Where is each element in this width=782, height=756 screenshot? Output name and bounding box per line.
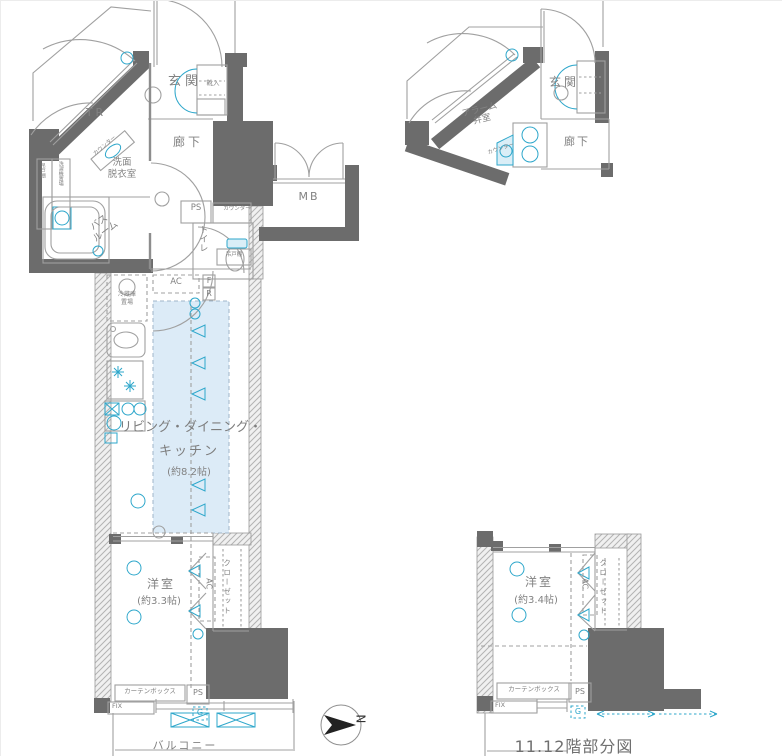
- label-trunk-room: TR: [71, 107, 121, 120]
- label-closet-ac-lower: AC: [580, 569, 589, 599]
- label-western-room-size-lower: (約3.4帖): [496, 595, 576, 607]
- label-fix-window-lower: FIX: [495, 702, 505, 709]
- label-balcony: バルコニー: [135, 740, 235, 753]
- label-pipe-space-bottom: PS: [187, 688, 209, 697]
- label-hallway-main: 廊下: [164, 136, 212, 150]
- label-meter-box: MB: [288, 191, 330, 204]
- label-shoe-cabinet: 靴入: [199, 80, 227, 87]
- plan-caption: 11.12階部分図: [499, 738, 649, 756]
- label-washroom-line2: 脱衣室: [97, 170, 147, 181]
- label-curtain-box-main: カーテンボックス: [115, 688, 185, 695]
- label-western-room-lower: 洋室: [509, 576, 569, 590]
- label-western-room-size-main: (約3.3帖): [119, 596, 199, 608]
- label-western-room-main: 洋室: [131, 578, 191, 592]
- label-hanging-cupboard-toilet: 吊戸棚: [217, 252, 251, 258]
- label-ldk-size: (約8.2帖): [119, 467, 259, 479]
- north-arrow-icon: [321, 705, 361, 745]
- label-ldk-line2: キッチン: [119, 445, 259, 460]
- label-gas-lower: G: [571, 707, 585, 716]
- label-closet-main: クローゼット: [222, 559, 231, 631]
- label-toilet: トイレ: [197, 225, 207, 271]
- label-fridge-line1: 冷蔵庫: [107, 292, 147, 299]
- label-washer-space: 洗濯機置場: [57, 161, 63, 229]
- label-pipe-space-top: PS: [181, 204, 211, 214]
- label-hanging-cupboard-washroom: 吊戸棚: [39, 163, 45, 225]
- label-washroom-line1: 洗面: [97, 158, 147, 169]
- compass-north-label: N: [353, 714, 367, 723]
- label-curtain-box-lower: カーテンボックス: [499, 686, 569, 693]
- label-ac-main: AC: [155, 278, 197, 288]
- label-closet-lower: クローゼット: [598, 559, 607, 631]
- label-entrance-upper: 玄関: [538, 76, 590, 90]
- label-hallway-upper: 廊下: [553, 136, 601, 149]
- label-ldk-line1: リビング・ダイニング・: [119, 421, 259, 436]
- floor-plan: TR 玄関 靴入 廊下 洗面 脱衣室 吊戸棚 洗濯機置場 カウンター バス ルー…: [0, 0, 782, 756]
- label-fix-window-main: FIX: [112, 703, 122, 710]
- label-alarm-r: R: [203, 289, 215, 298]
- label-pipe-space-lower: PS: [569, 687, 591, 696]
- label-counter-top: カウンター: [219, 206, 255, 212]
- label-fridge-line2: 置場: [107, 300, 147, 307]
- label-alarm-f: F: [203, 276, 215, 285]
- label-gas-main: G: [193, 708, 207, 717]
- label-closet-ac-main: AC: [204, 569, 213, 599]
